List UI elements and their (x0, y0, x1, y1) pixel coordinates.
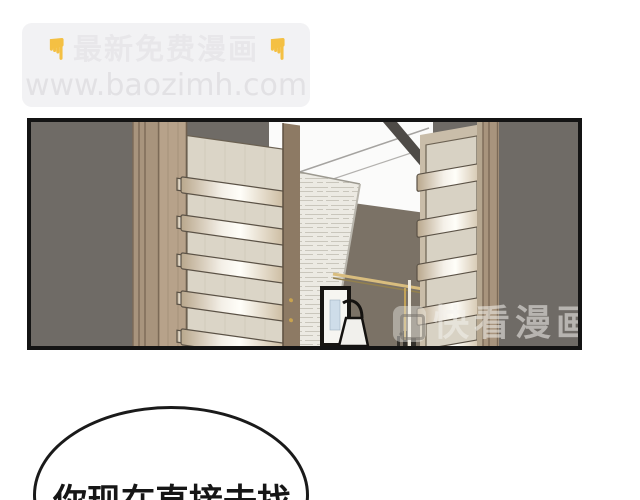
speech-bubble-text: 你现在直接去找 (40, 474, 304, 500)
promo-banner-title: 最新免费漫画 (73, 33, 259, 65)
promo-banner-line1: ☛ 最新免费漫画 ☛ (42, 29, 290, 69)
promo-banner: ☛ 最新免费漫画 ☛ www.baozimh.com (22, 23, 310, 107)
comic-page: ☛ 最新免费漫画 ☛ www.baozimh.com (0, 0, 640, 500)
pointing-down-hand-icon: ☛ (41, 36, 71, 63)
pointing-down-hand-icon: ☛ (261, 36, 291, 63)
promo-banner-url: www.baozimh.com (25, 69, 307, 103)
doorway-scene-illustration (31, 122, 578, 346)
comic-panel: 快看漫画 (27, 118, 582, 350)
